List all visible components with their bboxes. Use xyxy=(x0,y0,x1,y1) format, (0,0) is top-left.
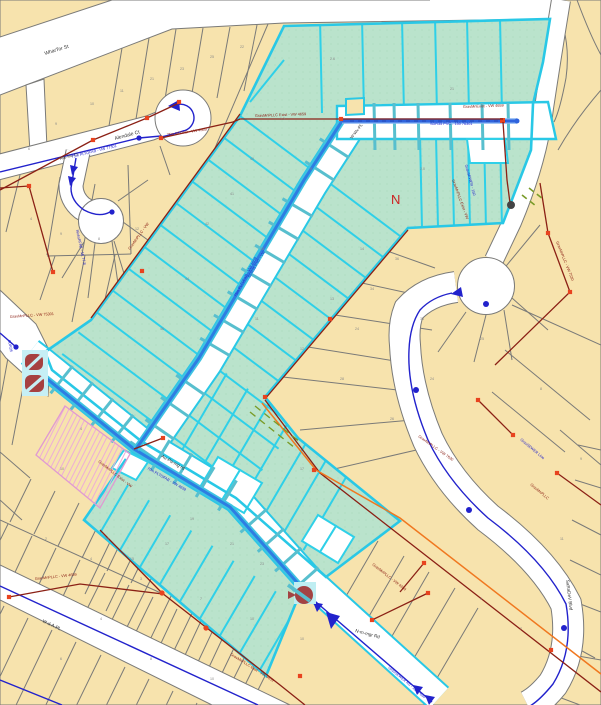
svg-text:41: 41 xyxy=(230,192,234,196)
svg-text:8: 8 xyxy=(540,387,542,391)
svg-text:24: 24 xyxy=(430,377,434,381)
svg-text:28: 28 xyxy=(340,377,344,381)
svg-text:12: 12 xyxy=(135,227,139,231)
svg-text:42: 42 xyxy=(205,222,209,226)
svg-text:44: 44 xyxy=(185,277,189,281)
svg-text:36: 36 xyxy=(395,257,399,261)
svg-text:4: 4 xyxy=(100,617,102,621)
svg-text:4: 4 xyxy=(80,427,82,431)
svg-text:40: 40 xyxy=(250,157,254,161)
svg-text:7: 7 xyxy=(200,597,202,601)
svg-text:21: 21 xyxy=(150,77,154,81)
svg-text:15: 15 xyxy=(260,247,264,251)
svg-text:8: 8 xyxy=(150,657,152,661)
svg-text:21: 21 xyxy=(450,87,454,91)
svg-text:11: 11 xyxy=(560,537,564,541)
svg-text:25: 25 xyxy=(210,55,214,59)
svg-text:11: 11 xyxy=(120,89,124,93)
svg-text:2.0: 2.0 xyxy=(420,167,425,171)
svg-text:4: 4 xyxy=(90,557,92,561)
svg-text:13: 13 xyxy=(330,297,334,301)
svg-text:N: N xyxy=(391,192,400,207)
svg-text:10: 10 xyxy=(300,637,304,641)
svg-text:21: 21 xyxy=(230,542,234,546)
svg-text:17: 17 xyxy=(165,542,169,546)
svg-text:10: 10 xyxy=(250,617,254,621)
svg-text:10: 10 xyxy=(210,677,214,681)
svg-text:10: 10 xyxy=(90,102,94,106)
svg-text:34: 34 xyxy=(370,287,374,291)
svg-text:10: 10 xyxy=(60,467,64,471)
svg-text:9: 9 xyxy=(60,232,62,236)
svg-text:19: 19 xyxy=(190,517,194,521)
svg-text:9: 9 xyxy=(55,122,57,126)
svg-text:13: 13 xyxy=(105,537,109,541)
svg-text:15: 15 xyxy=(130,557,134,561)
svg-text:14: 14 xyxy=(360,247,364,251)
svg-text:9: 9 xyxy=(580,457,582,461)
svg-text:2: 2 xyxy=(45,537,47,541)
svg-text:1.5: 1.5 xyxy=(280,117,285,121)
svg-text:2.6: 2.6 xyxy=(330,57,335,61)
svg-text:23: 23 xyxy=(260,562,264,566)
svg-text:35: 35 xyxy=(420,317,424,321)
svg-text:17: 17 xyxy=(300,467,304,471)
svg-text:12: 12 xyxy=(300,347,304,351)
svg-text:6: 6 xyxy=(60,657,62,661)
svg-text:6: 6 xyxy=(28,147,30,151)
svg-text:11: 11 xyxy=(255,317,259,321)
svg-text:9: 9 xyxy=(310,167,312,171)
svg-text:7: 7 xyxy=(520,627,522,631)
svg-text:22: 22 xyxy=(240,45,244,49)
svg-text:25: 25 xyxy=(480,337,484,341)
svg-text:4: 4 xyxy=(30,217,32,221)
svg-text:23: 23 xyxy=(180,67,184,71)
svg-text:4: 4 xyxy=(480,597,482,601)
svg-text:3: 3 xyxy=(140,577,142,581)
svg-text:46: 46 xyxy=(160,327,164,331)
svg-text:SDR35 PVC - 150 76301: SDR35 PVC - 150 76301 xyxy=(430,122,472,126)
svg-text:8: 8 xyxy=(98,237,100,241)
svg-text:24: 24 xyxy=(355,327,359,331)
svg-text:26: 26 xyxy=(390,417,394,421)
